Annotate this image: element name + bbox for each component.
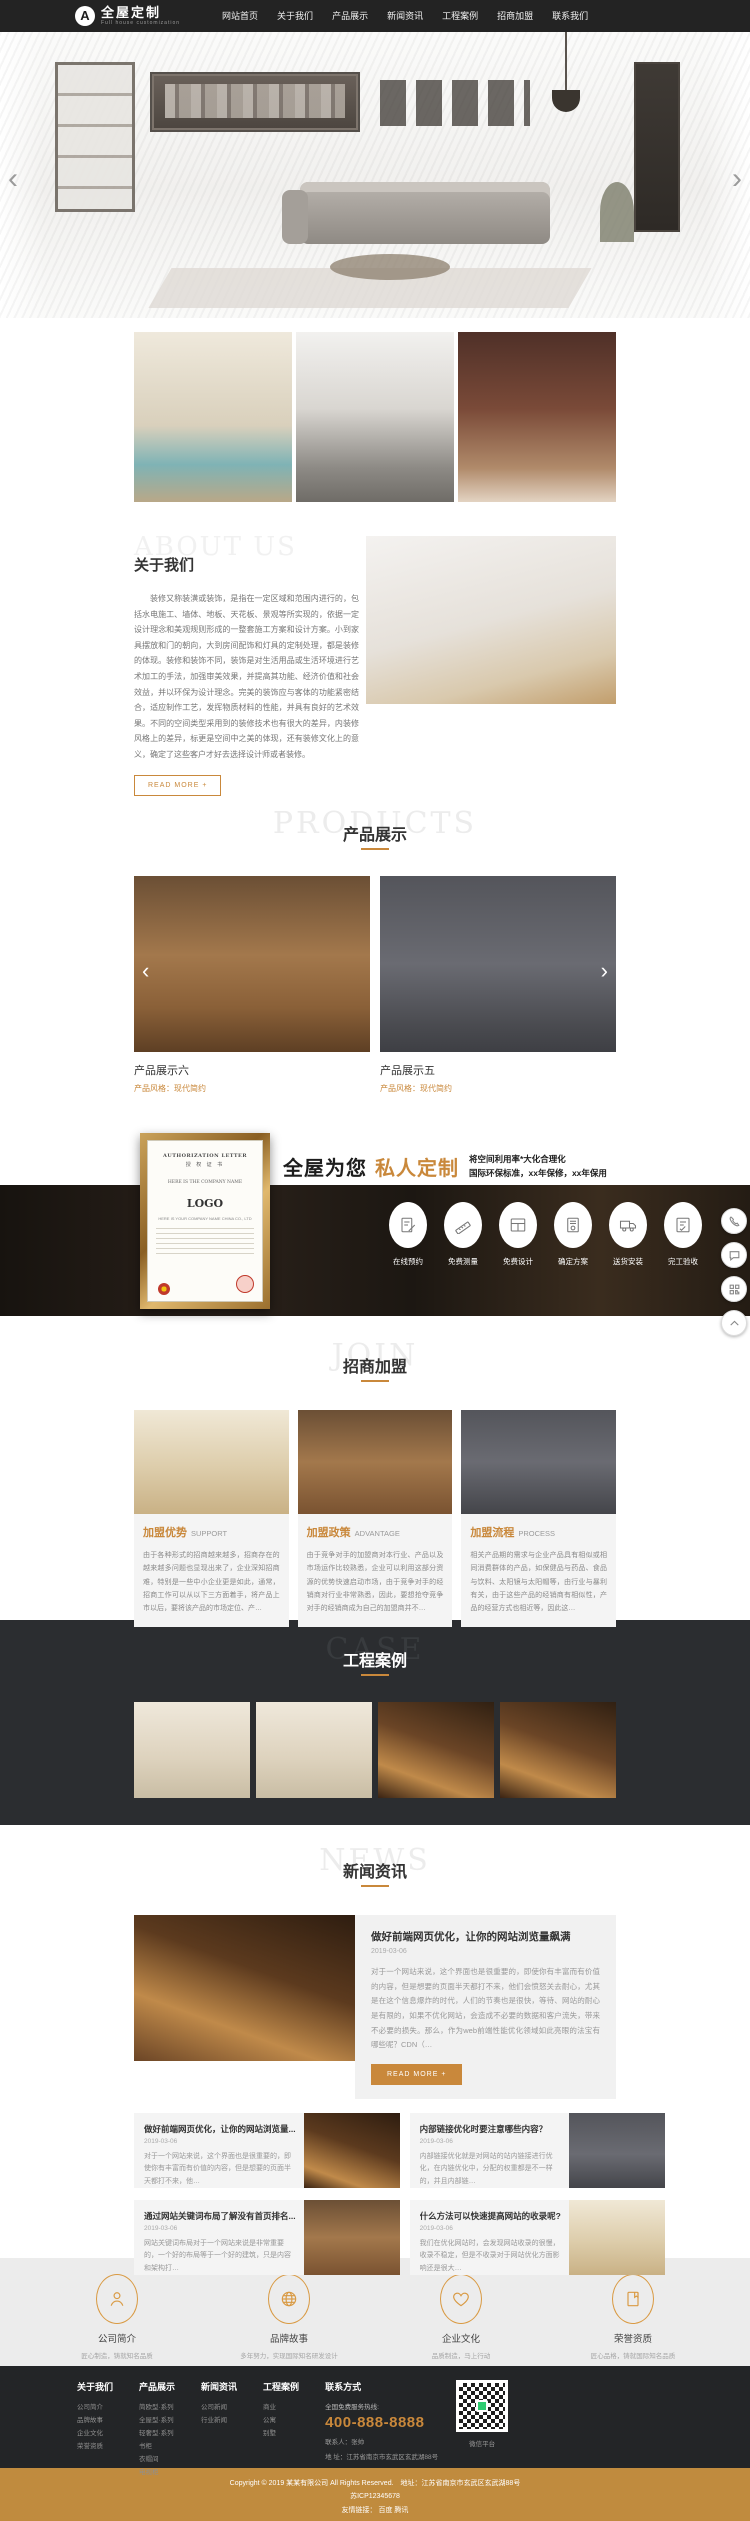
footer-col-products: 产品展示 简欧型·系列 全屋型·系列 轻奢型·系列 书柜 衣帽间 电视柜 xyxy=(139,2380,175,2479)
plan-icon xyxy=(564,1216,582,1234)
footer-qr: 微信平台 xyxy=(456,2380,508,2479)
footer: 关于我们 公司简介 品牌故事 企业文化 荣誉资质 产品展示 简欧型·系列 全屋型… xyxy=(0,2366,750,2468)
footer-link[interactable]: 简欧型·系列 xyxy=(139,2401,175,2414)
feature-title: 品牌故事 xyxy=(234,2331,344,2345)
title-underline xyxy=(361,1674,389,1676)
footer-link[interactable]: 商业 xyxy=(263,2401,299,2414)
about-read-more-button[interactable]: READ MORE + xyxy=(134,775,221,796)
nav-item-about[interactable]: 关于我们 xyxy=(277,9,313,22)
phone-icon[interactable] xyxy=(721,1208,747,1234)
news-item-photo xyxy=(304,2113,400,2188)
news-item-date: 2019-03-06 xyxy=(144,2138,296,2145)
sketch-coffee-table xyxy=(330,254,450,280)
news-list-item[interactable]: 做好前端网页优化，让你的网站浏览量... 2019-03-06 对于一个网站来说… xyxy=(134,2113,400,2188)
footer-contact: 联系方式 全国免费服务热线: 400-888-8888 联系人：张帅 地 址：江… xyxy=(325,2380,438,2479)
product-name: 产品展示六 xyxy=(134,1062,370,1078)
contact-address: 地 址：江苏省南京市玄武区玄武湖88号 xyxy=(325,2451,438,2461)
feature-brand-story[interactable]: 品牌故事 多年努力，实现国际知名研发设计 xyxy=(234,2274,344,2366)
custom-line-2: 国际环保标准，xx年保修，xx年保用 xyxy=(469,1166,607,1180)
sketch-sofa-arm xyxy=(282,190,308,244)
footer-link[interactable]: 公司简介 xyxy=(77,2401,113,2414)
top-navbar: A 全屋定制 Full house customization 网站首页 关于我… xyxy=(0,0,750,32)
news-item-excerpt: 我们在优化网站时，会发现网站收录的很慢，收录不稳定，但是不收录对于网站优化方面影… xyxy=(420,2238,561,2276)
footer-col-cases: 工程案例 商业 公寓 别墅 xyxy=(263,2380,299,2479)
certificate-text-lines xyxy=(156,1228,254,1258)
news-item-excerpt: 对于一个网站来说，这个界面也是很重要的，即使你有丰富而有价值的内容，但是想要的页… xyxy=(144,2151,296,2189)
footer-link[interactable]: 衣帽间 xyxy=(139,2453,175,2466)
footer-link[interactable]: 书柜 xyxy=(139,2440,175,2453)
banner-next-arrow-icon[interactable]: › xyxy=(732,164,742,194)
feature-title: 公司简介 xyxy=(62,2331,172,2345)
product-style: 产品风格：现代简约 xyxy=(380,1082,616,1096)
step-label: 免费测量 xyxy=(443,1256,483,1267)
feature-company-intro[interactable]: 公司简介 匠心制造，铸就知名品质 xyxy=(62,2274,172,2366)
qr-center-logo-icon xyxy=(476,2400,488,2412)
footer-link[interactable]: 电视柜 xyxy=(139,2466,175,2479)
footer-link[interactable]: 别墅 xyxy=(263,2427,299,2440)
news-item-title: 内部链接优化时要注意哪些内容？ xyxy=(420,2123,561,2135)
join-card-text: 由于各种形式的招商越来越多，招商存在的越来越多问题也显现出来了，企业深知招商难，… xyxy=(143,1549,280,1615)
news-item-photo xyxy=(569,2113,665,2188)
nav-item-home[interactable]: 网站首页 xyxy=(222,9,258,22)
nav-item-news[interactable]: 新闻资讯 xyxy=(387,9,423,22)
news-item-date: 2019-03-06 xyxy=(420,2138,561,2145)
product-card[interactable]: 产品展示六 产品风格：现代简约 产品亮点：产品采用整体橱柜兼顾了原木本来，匠心(… xyxy=(134,876,370,1127)
feature-title: 荣誉资质 xyxy=(578,2331,688,2345)
ribbon-rosette-icon xyxy=(158,1283,170,1295)
feature-title: 企业文化 xyxy=(406,2331,516,2345)
news-list: 做好前端网页优化，让你的网站浏览量... 2019-03-06 对于一个网站来说… xyxy=(134,2113,616,2275)
join-card-subtitle: SUPPORT xyxy=(191,1529,227,1538)
globe-icon xyxy=(279,2289,299,2309)
person-icon xyxy=(107,2289,127,2309)
custom-title-black: 全屋为您 xyxy=(283,1158,367,1180)
product-photo-gray-wall-unit xyxy=(380,876,616,1052)
custom-line-1: 将空间利用率*大化合理化 xyxy=(469,1152,607,1166)
wechat-qr-code xyxy=(456,2380,508,2432)
products-title: 产品展示 xyxy=(0,821,750,845)
case-photo-wood-hall[interactable] xyxy=(378,1702,494,1798)
customization-section: AUTHORIZATION LETTER 授 权 证 书 HERE IS THE… xyxy=(0,1100,750,1324)
step-label: 在线预约 xyxy=(388,1256,428,1267)
news-item-title: 什么方法可以快速提高网站的收录呢? xyxy=(420,2210,561,2222)
photo-loft-room[interactable] xyxy=(458,332,616,502)
sketch-plant xyxy=(600,182,634,242)
featured-article-title[interactable]: 做好前端网页优化，让你的网站浏览量飙满 xyxy=(371,1929,600,1944)
sketch-picture-frames xyxy=(380,80,530,126)
news-section: NEWS 新闻资讯 做好前端网页优化，让你的网站浏览量飙满 2019-03-06… xyxy=(0,1825,750,2258)
cases-section: CASE 工程案例 xyxy=(0,1620,750,1825)
back-to-top-icon[interactable] xyxy=(721,1310,747,1336)
certificate-logo-text: LOGO xyxy=(156,1197,254,1210)
about-title: 关于我们 xyxy=(134,554,359,575)
red-seal-icon xyxy=(236,1275,254,1293)
feature-honors[interactable]: 荣誉资质 匠心品格，铸就国际知名品质 xyxy=(578,2274,688,2366)
footer-link[interactable]: 公司新闻 xyxy=(201,2401,237,2414)
truck-icon xyxy=(619,1216,637,1234)
join-card-title: 加盟优势 xyxy=(143,1527,187,1539)
feature-subtitle: 匠心制造，铸就知名品质 xyxy=(62,2350,172,2360)
news-item-photo xyxy=(304,2200,400,2275)
case-photo-wood-hall-2[interactable] xyxy=(500,1702,616,1798)
heart-icon xyxy=(451,2289,471,2309)
sketch-books xyxy=(165,84,345,118)
footer-link[interactable]: 公寓 xyxy=(263,2414,299,2427)
product-name: 产品展示五 xyxy=(380,1062,616,1078)
nav-item-cases[interactable]: 工程案例 xyxy=(442,9,478,22)
join-card-text: 相关产品期的需求与企业产品具有相似或相同消费群体的产品，如保健品与药品、食品与饮… xyxy=(470,1549,607,1615)
join-photo-rustic-room xyxy=(298,1410,453,1514)
checklist-icon xyxy=(674,1216,692,1234)
sketch-lamp-cord xyxy=(565,32,567,92)
custom-title-orange: 私人定制 xyxy=(375,1158,459,1180)
join-card-title: 加盟政策 xyxy=(307,1527,351,1539)
join-card-advantage[interactable]: 加盟政策ADVANTAGE 由于竞争对手的加盟商对本行业、产品以及市场运作比较熟… xyxy=(298,1410,453,1627)
featured-article-photo xyxy=(134,1915,355,2061)
banner-prev-arrow-icon[interactable]: ‹ xyxy=(8,164,18,194)
step-label: 完工验收 xyxy=(663,1256,703,1267)
join-photo-gray-room xyxy=(461,1410,616,1514)
join-card-process[interactable]: 加盟流程PROCESS 相关产品期的需求与企业产品具有相似或相同消费群体的产品，… xyxy=(461,1410,616,1627)
hotline-number[interactable]: 400-888-8888 xyxy=(325,2414,438,2431)
step-free-design[interactable]: 免费设计 xyxy=(498,1202,538,1267)
photo-pool-room[interactable] xyxy=(134,332,292,502)
certificate-subheader: 授 权 证 书 xyxy=(156,1161,254,1168)
footer-link[interactable]: 全屋型·系列 xyxy=(139,2414,175,2427)
nav-item-products[interactable]: 产品展示 xyxy=(332,9,368,22)
news-item-title: 做好前端网页优化，让你的网站浏览量... xyxy=(144,2123,296,2135)
news-item-excerpt: 网站关键词布局对于一个网站来说是非常重要的，一个好的布局等于一个好的建筑，只是内… xyxy=(144,2238,296,2276)
form-icon xyxy=(399,1216,417,1234)
news-item-photo xyxy=(569,2200,665,2275)
products-prev-arrow-icon[interactable]: ‹ xyxy=(142,958,149,984)
step-label: 免费设计 xyxy=(498,1256,538,1267)
about-paragraph: 装修又称装潢或装饰，是指在一定区域和范围内进行的，包括水电施工、墙体、地板、天花… xyxy=(134,591,359,763)
main-nav: 网站首页 关于我们 产品展示 新闻资讯 工程案例 招商加盟 联系我们 xyxy=(222,9,588,22)
photo-modern-lobby[interactable] xyxy=(296,332,454,502)
sketch-cabinet xyxy=(634,62,680,232)
step-final-acceptance[interactable]: 完工验收 xyxy=(663,1202,703,1267)
icp-number[interactable]: 苏ICP12345678 xyxy=(0,2490,750,2503)
join-card-subtitle: ADVANTAGE xyxy=(355,1529,400,1538)
about-section: ABOUT US 关于我们 装修又称装潢或装饰，是指在一定区域和范围内进行的，包… xyxy=(0,502,750,780)
nav-item-contact[interactable]: 联系我们 xyxy=(552,9,588,22)
footer-link[interactable]: 品牌故事 xyxy=(77,2414,113,2427)
featured-article-excerpt: 对于一个网站来说，这个界面也是很重要的，即使你有丰富而有价值的内容，但是想要的页… xyxy=(371,1965,600,2053)
join-card-title: 加盟流程 xyxy=(470,1527,514,1539)
step-confirm-plan[interactable]: 确定方案 xyxy=(553,1202,593,1267)
service-steps: 在线预约 免费测量 免费设计 确定方案 送货安装 xyxy=(388,1202,703,1267)
footer-col-title: 联系方式 xyxy=(325,2380,438,2393)
step-label: 确定方案 xyxy=(553,1256,593,1267)
case-photo-tv-wall[interactable] xyxy=(134,1702,250,1798)
news-item-date: 2019-03-06 xyxy=(144,2225,296,2232)
certificate-company: HERE IS THE COMPANY NAME xyxy=(156,1180,254,1185)
news-read-more-button[interactable]: READ MORE + xyxy=(371,2064,462,2085)
contact-person: 联系人：张帅 xyxy=(325,2436,438,2446)
hotline-label: 全国免费服务热线: xyxy=(325,2401,438,2411)
site-logo[interactable]: A 全屋定制 Full house customization xyxy=(75,6,180,26)
certificate-header: AUTHORIZATION LETTER xyxy=(156,1153,254,1159)
news-item-excerpt: 内部链接优化就是对网站的站内链接进行优化，在内链优化中，分配的权重都是不一样的，… xyxy=(420,2151,561,2189)
news-item-date: 2019-03-06 xyxy=(420,2225,561,2232)
join-card-text: 由于竞争对手的加盟商对本行业、产品以及市场运作比较熟悉，企业可以利用这部分资源的… xyxy=(307,1549,444,1615)
logo-title: 全屋定制 xyxy=(101,6,180,20)
floating-contact-widget xyxy=(721,1208,747,1336)
chat-icon[interactable] xyxy=(721,1242,747,1268)
footer-link[interactable]: 轻奢型·系列 xyxy=(139,2427,175,2440)
photo-strip xyxy=(0,318,750,502)
hero-banner: ‹ › xyxy=(0,32,750,318)
about-photo xyxy=(366,536,616,704)
footer-col-title: 工程案例 xyxy=(263,2380,299,2393)
feature-subtitle: 品质制造，马上行动 xyxy=(406,2350,516,2360)
product-card[interactable]: 产品展示五 产品风格：现代简约 产品亮点：产品采用整体橱柜兼顾了原木本来，匠心(… xyxy=(380,876,616,1127)
news-list-item[interactable]: 内部链接优化时要注意哪些内容？ 2019-03-06 内部链接优化就是对网站的站… xyxy=(410,2113,665,2188)
friend-links[interactable]: 友情链接： 百度 腾讯 xyxy=(0,2504,750,2517)
badge-icon xyxy=(623,2289,643,2309)
step-label: 送货安装 xyxy=(608,1256,648,1267)
join-card-subtitle: PROCESS xyxy=(518,1529,555,1538)
news-list-item[interactable]: 通过网站关键词布局了解没有首页排名... 2019-03-06 网站关键词布局对… xyxy=(134,2200,400,2275)
feature-culture[interactable]: 企业文化 品质制造，马上行动 xyxy=(406,2274,516,2366)
news-title: 新闻资讯 xyxy=(0,1858,750,1882)
nav-item-join[interactable]: 招商加盟 xyxy=(497,9,533,22)
feature-subtitle: 匠心品格，铸就国际知名品质 xyxy=(578,2350,688,2360)
footer-link[interactable]: 行业新闻 xyxy=(201,2414,237,2427)
title-underline xyxy=(361,1885,389,1887)
feature-subtitle: 多年努力，实现国际知名研发设计 xyxy=(234,2350,344,2360)
design-icon xyxy=(509,1216,527,1234)
case-photo-tv-wall-2[interactable] xyxy=(256,1702,372,1798)
sketch-sofa xyxy=(300,182,550,244)
step-delivery-install[interactable]: 送货安装 xyxy=(608,1202,648,1267)
featured-article-date: 2019-03-06 xyxy=(371,1948,600,1955)
cases-title: 工程案例 xyxy=(0,1647,750,1671)
title-underline xyxy=(361,1380,389,1382)
qr-code-icon[interactable] xyxy=(721,1276,747,1302)
products-next-arrow-icon[interactable]: › xyxy=(601,958,608,984)
footer-link[interactable]: 荣誉资质 xyxy=(77,2440,113,2453)
certificate-footer-line: HERE IS YOUR COMPANY NAME CHINA CO., LTD xyxy=(156,1216,254,1222)
footer-col-title: 产品展示 xyxy=(139,2380,175,2393)
sketch-window xyxy=(55,62,135,212)
qr-caption: 微信平台 xyxy=(456,2438,508,2448)
footer-col-title: 关于我们 xyxy=(77,2380,113,2393)
authorization-certificate: AUTHORIZATION LETTER 授 权 证 书 HERE IS THE… xyxy=(140,1133,270,1309)
footer-col-title: 新闻资讯 xyxy=(201,2380,237,2393)
footer-link[interactable]: 企业文化 xyxy=(77,2427,113,2440)
ruler-icon xyxy=(454,1216,472,1234)
step-free-measure[interactable]: 免费测量 xyxy=(443,1202,483,1267)
products-section: PRODUCTS 产品展示 ‹ 产品展示六 产品风格：现代简约 产品亮点：产品采… xyxy=(0,780,750,1100)
footer-col-about: 关于我们 公司简介 品牌故事 企业文化 荣誉资质 xyxy=(77,2380,113,2479)
product-style: 产品风格：现代简约 xyxy=(134,1082,370,1096)
join-photo-bright-room xyxy=(134,1410,289,1514)
title-underline xyxy=(361,848,389,850)
product-photo-rustic-living xyxy=(134,876,370,1052)
step-online-booking[interactable]: 在线预约 xyxy=(388,1202,428,1267)
featured-article: 做好前端网页优化，让你的网站浏览量飙满 2019-03-06 对于一个网站来说，… xyxy=(134,1915,616,2099)
news-list-item[interactable]: 什么方法可以快速提高网站的收录呢? 2019-03-06 我们在优化网站时，会发… xyxy=(410,2200,665,2275)
logo-mark-icon: A xyxy=(75,6,95,26)
news-item-title: 通过网站关键词布局了解没有首页排名... xyxy=(144,2210,296,2222)
join-card-support[interactable]: 加盟优势SUPPORT 由于各种形式的招商越来越多，招商存在的越来越多问题也显现… xyxy=(134,1410,289,1627)
join-title: 招商加盟 xyxy=(0,1353,750,1377)
footer-col-news: 新闻资讯 公司新闻 行业新闻 xyxy=(201,2380,237,2479)
logo-subtitle: Full house customization xyxy=(101,20,180,26)
join-section: JOIN 招商加盟 加盟优势SUPPORT 由于各种形式的招商越来越多，招商存在… xyxy=(0,1324,750,1620)
